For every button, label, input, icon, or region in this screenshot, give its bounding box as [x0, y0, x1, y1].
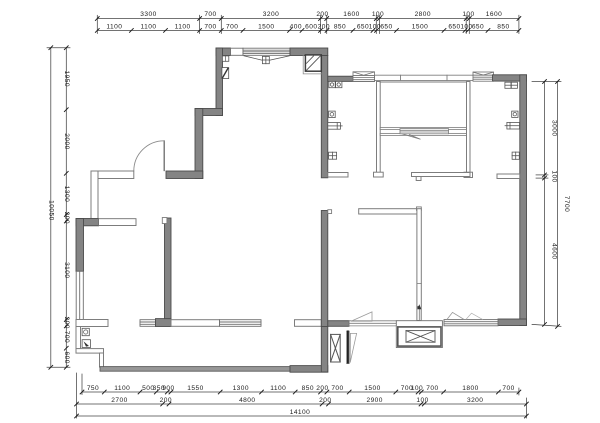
svg-text:1100: 1100 — [175, 24, 191, 31]
svg-text:4800: 4800 — [239, 397, 255, 404]
svg-text:200: 200 — [63, 317, 70, 329]
svg-text:400: 400 — [290, 24, 302, 31]
svg-text:100: 100 — [369, 24, 381, 31]
svg-text:2800: 2800 — [415, 11, 431, 18]
svg-text:650: 650 — [357, 24, 369, 31]
svg-text:1100: 1100 — [270, 385, 286, 392]
svg-text:2700: 2700 — [111, 397, 127, 404]
svg-text:3100: 3100 — [63, 262, 70, 278]
svg-text:200: 200 — [63, 212, 70, 224]
svg-text:750: 750 — [87, 385, 99, 392]
svg-text:700: 700 — [226, 24, 238, 31]
svg-text:1300: 1300 — [233, 385, 249, 392]
svg-text:3200: 3200 — [263, 11, 279, 18]
svg-text:200: 200 — [316, 11, 328, 18]
svg-text:600: 600 — [63, 352, 70, 364]
svg-text:1950: 1950 — [63, 70, 70, 86]
svg-text:2000: 2000 — [63, 133, 70, 149]
svg-text:100: 100 — [460, 24, 472, 31]
svg-text:900: 900 — [162, 385, 174, 392]
svg-text:1100: 1100 — [141, 24, 157, 31]
svg-text:600: 600 — [305, 24, 317, 31]
svg-text:1100: 1100 — [106, 24, 122, 31]
svg-text:1100: 1100 — [114, 385, 130, 392]
svg-text:700: 700 — [331, 385, 343, 392]
svg-text:100: 100 — [550, 170, 557, 182]
svg-text:650: 650 — [380, 24, 392, 31]
svg-text:200: 200 — [319, 397, 331, 404]
svg-text:1500: 1500 — [412, 24, 428, 31]
svg-text:650: 650 — [448, 24, 460, 31]
svg-text:1500: 1500 — [258, 24, 274, 31]
svg-text:7700: 7700 — [563, 196, 570, 212]
svg-text:1600: 1600 — [486, 11, 502, 18]
svg-text:700: 700 — [204, 11, 216, 18]
svg-text:14100: 14100 — [290, 409, 311, 416]
svg-text:100: 100 — [372, 11, 384, 18]
svg-text:2900: 2900 — [366, 397, 382, 404]
svg-text:10050: 10050 — [47, 200, 54, 221]
svg-text:200: 200 — [316, 385, 328, 392]
svg-text:850: 850 — [497, 24, 509, 31]
svg-text:4600: 4600 — [550, 243, 557, 259]
svg-text:100: 100 — [411, 385, 423, 392]
svg-text:1550: 1550 — [187, 385, 203, 392]
svg-text:1600: 1600 — [343, 11, 359, 18]
svg-text:200: 200 — [160, 397, 172, 404]
svg-text:700: 700 — [426, 385, 438, 392]
svg-text:100: 100 — [462, 11, 474, 18]
svg-text:3000: 3000 — [550, 120, 557, 136]
svg-text:850: 850 — [334, 24, 346, 31]
svg-text:3300: 3300 — [140, 11, 156, 18]
svg-text:850: 850 — [302, 385, 314, 392]
svg-text:1800: 1800 — [462, 385, 478, 392]
svg-text:700: 700 — [204, 24, 216, 31]
svg-text:700: 700 — [63, 331, 70, 343]
svg-text:1500: 1500 — [364, 385, 380, 392]
svg-text:700: 700 — [502, 385, 514, 392]
svg-text:3200: 3200 — [467, 397, 483, 404]
svg-text:200: 200 — [318, 24, 330, 31]
svg-text:100: 100 — [416, 397, 428, 404]
svg-text:1300: 1300 — [63, 186, 70, 202]
svg-text:650: 650 — [472, 24, 484, 31]
